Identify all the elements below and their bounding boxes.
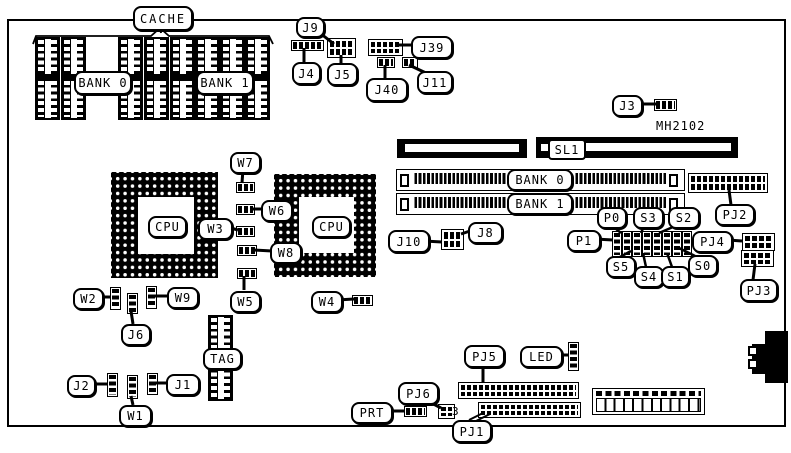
label-w3: W3 [198, 218, 233, 240]
label-j9: J9 [296, 17, 325, 38]
label-tag: TAG [203, 348, 242, 370]
label-cpu-right: CPU [312, 216, 351, 238]
label-sl1: SL1 [548, 139, 586, 160]
label-w8: W8 [270, 242, 302, 264]
label-w6: W6 [261, 200, 293, 222]
label-j3: J3 [612, 95, 643, 117]
label-led: LED [520, 346, 563, 368]
label-pj4: PJ4 [692, 231, 733, 253]
label-j10: J10 [388, 230, 430, 253]
label-j39: J39 [411, 36, 453, 59]
label-pj6: PJ6 [398, 382, 439, 405]
label-s4: S4 [634, 266, 664, 288]
label-w2: W2 [73, 288, 104, 310]
label-pj3: PJ3 [740, 279, 778, 302]
label-j40: J40 [366, 78, 408, 102]
label-s2: S2 [668, 207, 700, 229]
label-j6: J6 [121, 324, 151, 346]
label-j1: J1 [166, 374, 200, 396]
label-cache: CACHE [133, 6, 193, 31]
motherboard-diagram: CACHE BANK 0 BANK 1 J9 J4 J5 J39 J40 J11… [0, 0, 791, 453]
label-j8: J8 [468, 222, 503, 244]
label-w5: W5 [230, 291, 261, 313]
label-s1: S1 [661, 266, 690, 288]
label-cache-bank0: BANK 0 [74, 71, 132, 95]
label-p0: P0 [597, 207, 627, 229]
label-cache-bank1: BANK 1 [196, 71, 254, 95]
label-pj5: PJ5 [464, 345, 505, 368]
label-pj2: PJ2 [715, 204, 755, 226]
label-cpu-left: CPU [148, 216, 187, 238]
label-w9: W9 [167, 287, 199, 309]
label-w4: W4 [311, 291, 343, 313]
label-p1: P1 [567, 230, 601, 252]
label-s3: S3 [633, 207, 664, 229]
label-w7: W7 [230, 152, 261, 174]
label-j4: J4 [292, 62, 321, 85]
label-simm-bank0: BANK 0 [507, 169, 573, 191]
label-w1: W1 [119, 405, 152, 427]
keyboard-connector [748, 331, 788, 383]
label-simm-bank1: BANK 1 [507, 193, 573, 215]
label-s5: S5 [606, 256, 636, 278]
label-j2: J2 [67, 375, 96, 397]
label-pj1: PJ1 [452, 420, 492, 443]
label-j11: J11 [417, 71, 453, 94]
label-prt: PRT [351, 402, 393, 424]
label-j5: J5 [327, 63, 358, 86]
label-s0: S0 [688, 255, 718, 277]
